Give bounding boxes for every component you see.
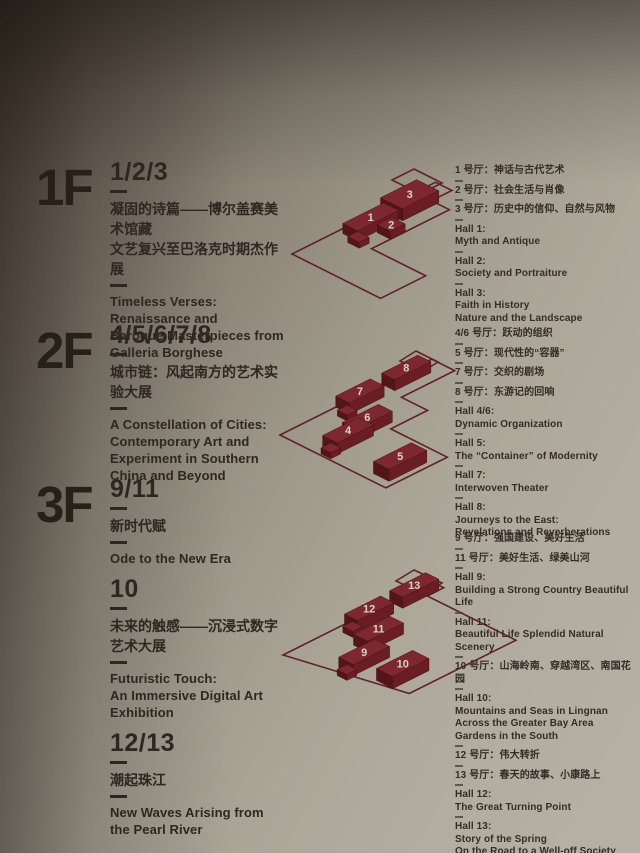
hall-number-label: 9 <box>361 647 367 659</box>
hall-list-line: Hall 1: <box>455 224 635 237</box>
hall-list-item: Hall 10:Mountains and Seas in LingnanAcr… <box>455 693 635 743</box>
exhibition-title-zh: 城市链：风起南方的艺术实验大展 <box>110 362 288 402</box>
hall-separator-dash <box>455 433 463 435</box>
hall-range: 9/11 <box>110 477 288 502</box>
exhibition-column-2f: 4/5/6/7/8城市链：风起南方的艺术实验大展A Constellation … <box>110 323 288 494</box>
hall-number-label: 1 <box>368 212 374 224</box>
exhibition-column-3f: 9/11新时代赋Ode to the New Era10未来的触感——沉浸式数字… <box>110 477 288 848</box>
hall-list-item: 12 号厅：伟大转折 <box>455 750 635 763</box>
exhibition-title-zh: 文艺复兴至巴洛克时期杰作展 <box>110 239 288 279</box>
separator-dash <box>110 190 127 193</box>
hall-list-line: Nature and the Landscape <box>455 313 635 326</box>
separator-dash <box>110 507 127 510</box>
hall-separator-dash <box>455 497 463 499</box>
hall-list-item: Hall 9:Building a Strong Country Beautif… <box>455 572 635 610</box>
museum-floor-directory-sign: 1F 1/2/3凝固的诗篇——博尔盖赛美术馆藏文艺复兴至巴洛克时期杰作展Time… <box>0 0 640 853</box>
floor-label-3f: 3F <box>36 479 92 530</box>
hall-list-line: Hall 12: <box>455 789 635 802</box>
hall-separator-dash <box>455 283 463 285</box>
exhibition-title-en: Experiment in Southern <box>110 450 288 467</box>
hall-list-line: The “Container” of Modernity <box>455 451 635 464</box>
hall-range: 12/13 <box>110 731 288 756</box>
exhibition-title-en: Exhibition <box>110 704 288 721</box>
hall-list-item: 10 号厅：山海岭南、穿越湾区、南国花园 <box>455 661 635 686</box>
hall-separator-dash <box>455 199 463 201</box>
hall-list-item: Hall 1:Myth and Antique <box>455 224 635 249</box>
hall-list-item: 13 号厅：春天的故事、小康路上 <box>455 770 635 783</box>
hall-separator-dash <box>455 745 463 747</box>
hall-list-item: 4/6 号厅：跃动的组织 <box>455 328 635 341</box>
exhibition-title-zh: 潮起珠江 <box>110 770 288 790</box>
hall-list-line: 3 号厅：历史中的信仰、自然与风物 <box>455 204 635 217</box>
hall-list-line: Building a Strong Country Beautiful Life <box>455 585 635 610</box>
hall-separator-dash <box>455 362 463 364</box>
hall-list-line: 12 号厅：伟大转折 <box>455 750 635 763</box>
hall-list-line: 13 号厅：春天的故事、小康路上 <box>455 770 635 783</box>
hall-list-line: Hall 9: <box>455 572 635 585</box>
hall-list-item: Hall 7:Interwoven Theater <box>455 470 635 495</box>
hall-list-item: 7 号厅：交织的剧场 <box>455 367 635 380</box>
exhibition-title-zh: 新时代赋 <box>110 516 288 536</box>
hall-list-line: Hall 8: <box>455 502 635 515</box>
exhibition-title-en: Timeless Verses: <box>110 293 288 310</box>
hall-list-line: Hall 5: <box>455 438 635 451</box>
floor-label-1f: 1F <box>36 162 92 213</box>
hall-list-item: 11 号厅：美好生活、绿美山河 <box>455 553 635 566</box>
hall-separator-dash <box>455 656 463 658</box>
hall-list-line: Across the Greater Bay Area <box>455 718 635 731</box>
hall-separator-dash <box>455 784 463 786</box>
separator-dash <box>110 284 127 287</box>
hall-list-item: 1 号厅：神话与古代艺术 <box>455 165 635 178</box>
exhibition-title-en: New Waves Arising from <box>110 804 288 821</box>
exhibition-title-en: Contemporary Art and <box>110 433 288 450</box>
floor-label-2f: 2F <box>36 325 92 376</box>
hall-list-line: Faith in History <box>455 300 635 313</box>
hall-list-3f: 9 号厅：强国建设、美好生活11 号厅：美好生活、绿美山河Hall 9:Buil… <box>455 533 635 853</box>
hall-number-label: 3 <box>407 189 413 201</box>
hall-list-line: Journeys to the East: <box>455 515 635 528</box>
hall-list-line: 2 号厅：社会生活与肖像 <box>455 185 635 198</box>
exhibition-title-en: An Immersive Digital Art <box>110 687 288 704</box>
hall-list-line: On the Road to a Well-off Society <box>455 846 635 853</box>
hall-separator-dash <box>455 567 463 569</box>
hall-list-2f: 4/6 号厅：跃动的组织5 号厅：现代性的“容器”7 号厅：交织的剧场8 号厅：… <box>455 328 635 540</box>
hall-list-item: Hall 5:The “Container” of Modernity <box>455 438 635 463</box>
hall-list-line: 4/6 号厅：跃动的组织 <box>455 328 635 341</box>
hall-range: 4/5/6/7/8 <box>110 323 288 348</box>
hall-number-label: 13 <box>408 580 420 592</box>
hall-number-label: 2 <box>388 219 394 231</box>
separator-dash <box>110 761 127 764</box>
hall-range: 1/2/3 <box>110 160 288 185</box>
hall-list-item: 8 号厅：东游记的回响 <box>455 387 635 400</box>
hall-list-item: 9 号厅：强国建设、美好生活 <box>455 533 635 546</box>
hall-list-line: 10 号厅：山海岭南、穿越湾区、南国花园 <box>455 661 635 686</box>
exhibition-entry: 4/5/6/7/8城市链：风起南方的艺术实验大展A Constellation … <box>110 323 288 484</box>
hall-list-line: Society and Portraiture <box>455 268 635 281</box>
hall-list-line: 9 号厅：强国建设、美好生活 <box>455 533 635 546</box>
hall-list-line: 7 号厅：交织的剧场 <box>455 367 635 380</box>
hall-list-item: 3 号厅：历史中的信仰、自然与风物 <box>455 204 635 217</box>
hall-number-label: 12 <box>363 603 375 615</box>
exhibition-title-en: Futuristic Touch: <box>110 670 288 687</box>
hall-list-line: Hall 2: <box>455 256 635 269</box>
hall-list-item: Hall 11:Beautiful Life Splendid Natural … <box>455 617 635 655</box>
exhibition-title-zh: 未来的触感——沉浸式数字艺术大展 <box>110 616 288 656</box>
hall-list-line: 5 号厅：现代性的“容器” <box>455 348 635 361</box>
hall-separator-dash <box>455 816 463 818</box>
hall-list-line: Beautiful Life Splendid Natural Scenery <box>455 629 635 654</box>
hall-list-line: Dynamic Organization <box>455 419 635 432</box>
hall-list-line: Gardens in the South <box>455 731 635 744</box>
hall-number-label: 7 <box>357 386 363 398</box>
hall-list-item: Hall 3:Faith in HistoryNature and the La… <box>455 288 635 326</box>
hall-separator-dash <box>455 343 463 345</box>
hall-separator-dash <box>455 548 463 550</box>
hall-separator-dash <box>455 401 463 403</box>
hall-separator-dash <box>455 382 463 384</box>
separator-dash <box>110 407 127 410</box>
hall-list-1f: 1 号厅：神话与古代艺术2 号厅：社会生活与肖像3 号厅：历史中的信仰、自然与风… <box>455 165 635 325</box>
hall-list-line: 8 号厅：东游记的回响 <box>455 387 635 400</box>
hall-list-item: 2 号厅：社会生活与肖像 <box>455 185 635 198</box>
exhibition-title-en: the Pearl River <box>110 821 288 838</box>
hall-list-line: Hall 13: <box>455 821 635 834</box>
hall-separator-dash <box>455 612 463 614</box>
hall-number-label: 11 <box>373 624 385 636</box>
separator-dash <box>110 607 127 610</box>
exhibition-entry: 9/11新时代赋Ode to the New Era <box>110 477 288 567</box>
hall-list-line: The Great Turning Point <box>455 802 635 815</box>
exhibition-title-en: A Constellation of Cities: <box>110 416 288 433</box>
hall-number-label: 10 <box>397 659 409 671</box>
hall-range: 10 <box>110 577 288 602</box>
hall-list-line: Myth and Antique <box>455 236 635 249</box>
hall-list-line: 1 号厅：神话与古代艺术 <box>455 165 635 178</box>
hall-separator-dash <box>455 180 463 182</box>
hall-list-line: Mountains and Seas in Lingnan <box>455 706 635 719</box>
hall-list-line: Hall 10: <box>455 693 635 706</box>
separator-dash <box>110 353 127 356</box>
hall-list-line: Story of the Spring <box>455 834 635 847</box>
hall-number-label: 5 <box>397 451 403 463</box>
separator-dash <box>110 541 127 544</box>
hall-list-line: 11 号厅：美好生活、绿美山河 <box>455 553 635 566</box>
hall-separator-dash <box>455 688 463 690</box>
hall-separator-dash <box>455 219 463 221</box>
hall-list-item: Hall 2:Society and Portraiture <box>455 256 635 281</box>
hall-list-line: Hall 11: <box>455 617 635 630</box>
exhibition-title-en: Ode to the New Era <box>110 550 288 567</box>
hall-separator-dash <box>455 765 463 767</box>
hall-number-label: 4 <box>345 425 352 437</box>
hall-list-line: Hall 4/6: <box>455 406 635 419</box>
exhibition-title-zh: 凝固的诗篇——博尔盖赛美术馆藏 <box>110 199 288 239</box>
exhibition-entry: 12/13潮起珠江New Waves Arising fromthe Pearl… <box>110 731 288 838</box>
hall-list-item: Hall 4/6:Dynamic Organization <box>455 406 635 431</box>
hall-number-label: 8 <box>403 362 409 374</box>
hall-list-item: Hall 13:Story of the SpringOn the Road t… <box>455 821 635 853</box>
hall-list-line: Hall 3: <box>455 288 635 301</box>
hall-list-item: 5 号厅：现代性的“容器” <box>455 348 635 361</box>
separator-dash <box>110 661 127 664</box>
hall-list-line: Interwoven Theater <box>455 483 635 496</box>
hall-list-item: Hall 12:The Great Turning Point <box>455 789 635 814</box>
hall-separator-dash <box>455 251 463 253</box>
separator-dash <box>110 795 127 798</box>
hall-separator-dash <box>455 465 463 467</box>
exhibition-entry: 10未来的触感——沉浸式数字艺术大展Futuristic Touch:An Im… <box>110 577 288 721</box>
hall-list-line: Hall 7: <box>455 470 635 483</box>
